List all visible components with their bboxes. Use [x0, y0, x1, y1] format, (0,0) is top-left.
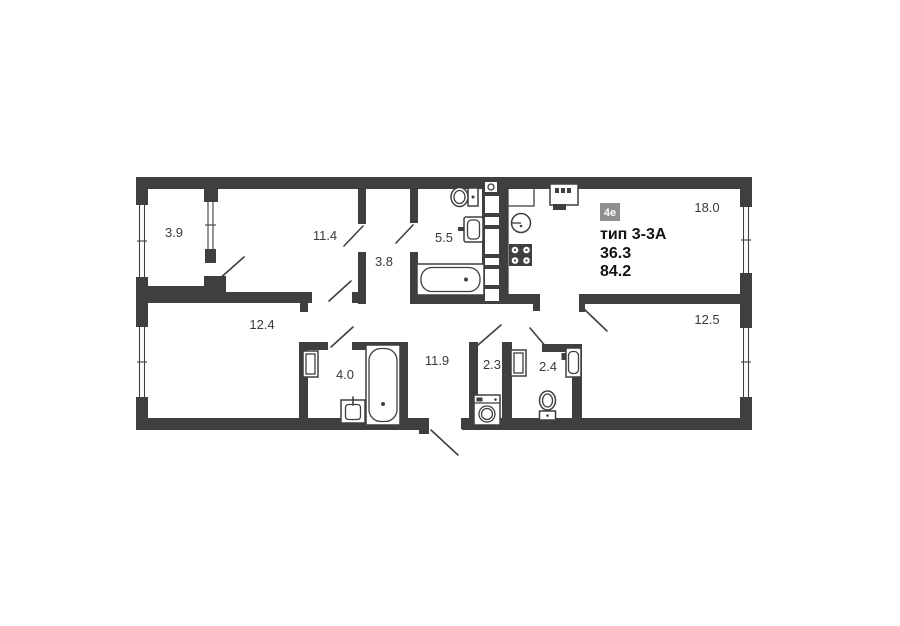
shaft-cell — [485, 289, 499, 301]
wall — [740, 273, 752, 328]
door-swing-laundry — [478, 325, 501, 345]
shaft-cell — [485, 196, 499, 213]
wall — [300, 302, 308, 312]
stove-burner-dot — [525, 249, 527, 251]
window-balcony-partition — [205, 202, 216, 249]
wall — [462, 418, 752, 430]
stove-burner-dot — [514, 249, 516, 251]
freezer-stars-icon — [567, 188, 571, 193]
washing-machine-detail — [477, 398, 483, 402]
floor-plan-canvas: 3.9 11.4 3.8 5.5 18.0 12.4 4.0 11.9 2.3 … — [0, 0, 900, 626]
room-area-label-corridor: 11.9 — [425, 353, 449, 368]
floor-plan-drawing: 3.9 11.4 3.8 5.5 18.0 12.4 4.0 11.9 2.3 … — [0, 0, 900, 626]
room-area-label-balcony: 3.9 — [165, 225, 183, 240]
water-heater — [511, 350, 526, 376]
shaft-cell — [485, 269, 499, 285]
toilet-detail — [472, 196, 475, 199]
kitchen-sink-drain — [520, 225, 523, 228]
door-swing-bedroom-top — [344, 226, 363, 246]
toilet-detail — [546, 414, 549, 417]
freezer-stars-icon — [555, 188, 559, 193]
fridge — [550, 184, 578, 205]
walls — [136, 177, 752, 434]
entrance-jamb — [461, 418, 468, 429]
bathtub-drain — [381, 402, 385, 406]
living-area-label: 36.3 — [600, 245, 631, 262]
room-area-label-bedroom-left: 12.4 — [249, 317, 274, 332]
wall — [136, 397, 148, 430]
wall — [306, 342, 328, 350]
bathtub — [366, 345, 400, 425]
unit-badge-label: 4е — [604, 207, 616, 219]
room-area-label-wc: 2.4 — [539, 359, 557, 374]
window-bedroom-left — [136, 327, 148, 397]
unit-info: 4е тип 3-3А 36.3 84.2 — [600, 203, 667, 280]
laundry-fixtures — [474, 395, 500, 425]
unit-type-label: тип 3-3А — [600, 226, 667, 243]
window-bedroom-right — [740, 328, 752, 397]
washing-machine-knob — [494, 398, 497, 401]
stove-burner-dot — [525, 259, 527, 261]
wall — [740, 397, 752, 430]
room-area-label-inner-hall: 3.8 — [375, 254, 393, 269]
room-area-label-bedroom-right: 12.5 — [694, 312, 719, 327]
wall — [579, 294, 741, 304]
wall — [205, 249, 216, 263]
shaft-cell — [485, 229, 499, 254]
ventilation-shaft — [482, 182, 508, 304]
shaft-cell — [485, 258, 499, 265]
door-swing-balcony — [218, 257, 244, 280]
wall — [358, 252, 366, 304]
window-balcony — [136, 205, 148, 277]
shaft-cell — [485, 217, 499, 225]
wall — [136, 286, 226, 303]
room-area-label-living-room: 18.0 — [694, 200, 719, 215]
door-swing-wc — [530, 328, 547, 348]
door-swing-bathroom-small — [331, 327, 353, 347]
wall — [533, 294, 540, 311]
water-heater — [303, 351, 318, 377]
wall — [222, 292, 312, 303]
total-area-label: 84.2 — [600, 263, 631, 280]
fridge-handle — [553, 204, 566, 210]
wall — [358, 186, 366, 224]
room-area-label-bathroom-main: 5.5 — [435, 230, 453, 245]
kitchen-counter — [508, 189, 534, 294]
stove-burner-dot — [514, 259, 516, 261]
wall — [410, 186, 418, 223]
window-living-room — [740, 207, 752, 273]
door-swing-entrance — [431, 430, 458, 455]
wall — [136, 177, 752, 189]
wall — [204, 186, 218, 202]
room-area-label-laundry: 2.3 — [483, 357, 501, 372]
sink-tap — [458, 227, 464, 231]
room-area-label-bathroom-small: 4.0 — [336, 367, 354, 382]
entrance-jamb — [419, 418, 429, 434]
bathroom-small-fixtures — [303, 345, 400, 425]
wall — [740, 177, 752, 207]
freezer-stars-icon — [561, 188, 565, 193]
bathtub-drain — [464, 278, 468, 282]
door-swing-midwall — [329, 281, 351, 301]
room-area-label-bedroom-top: 11.4 — [313, 228, 337, 243]
door-swing-bedroom-right — [583, 308, 607, 331]
corner-sink-tap — [562, 353, 567, 360]
wall — [136, 177, 148, 205]
kitchen-fixtures — [508, 184, 578, 294]
door-swing-bathroom-main — [396, 225, 413, 243]
